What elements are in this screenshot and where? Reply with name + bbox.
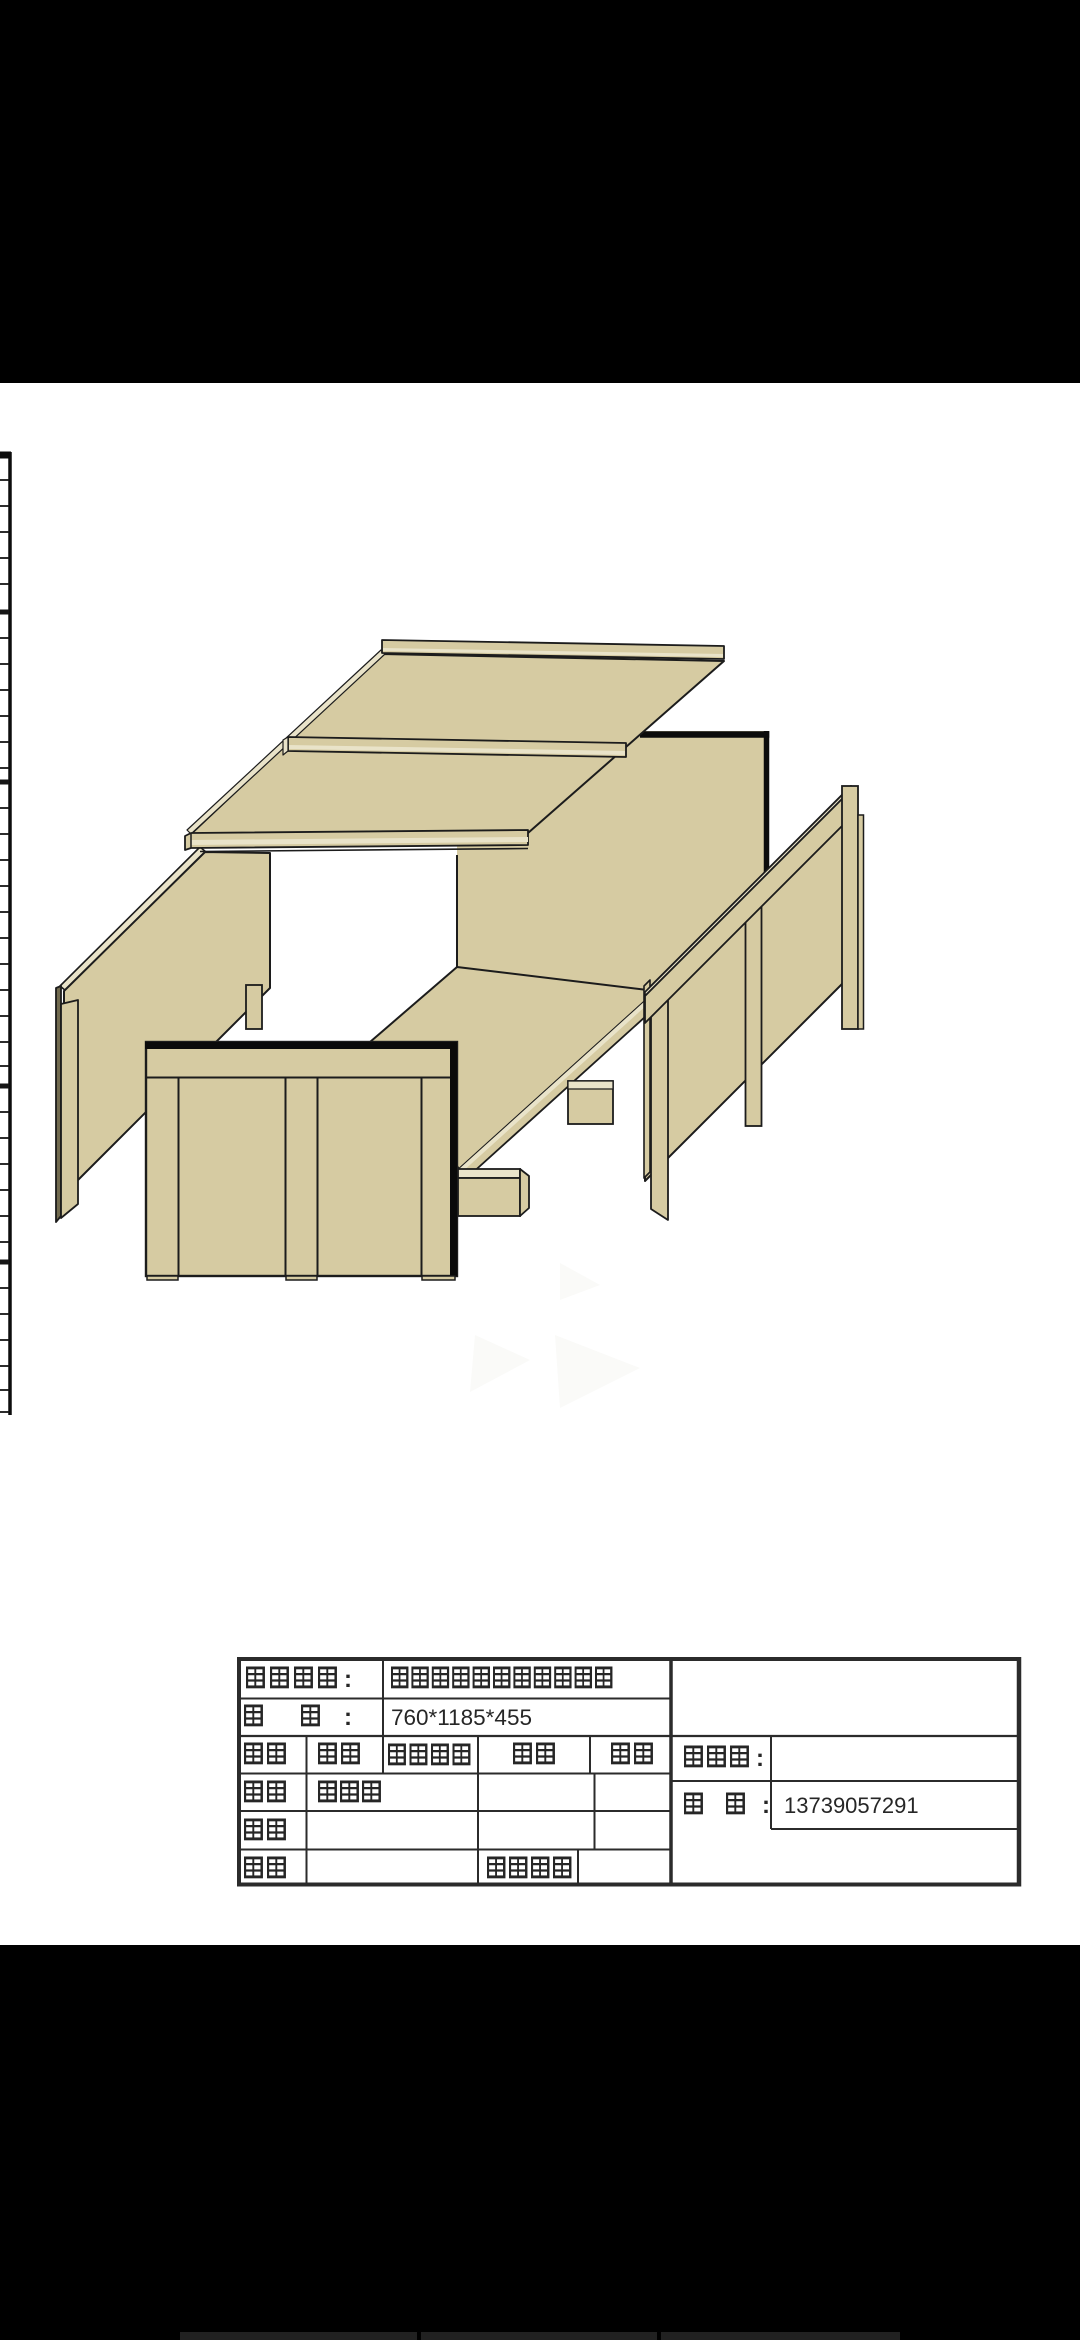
svg-text::: : <box>344 1666 352 1693</box>
svg-text::: : <box>756 1745 764 1772</box>
svg-text:13739057291: 13739057291 <box>784 1793 919 1818</box>
svg-text::: : <box>762 1792 770 1819</box>
svg-text::: : <box>344 1704 352 1731</box>
svg-text:760*1185*455: 760*1185*455 <box>391 1705 532 1730</box>
